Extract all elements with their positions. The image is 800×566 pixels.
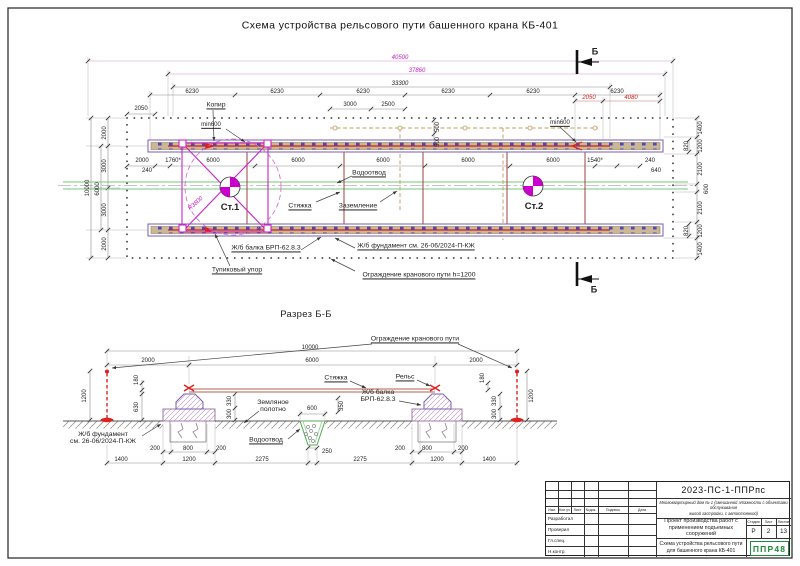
dim-6000: 6000 <box>461 158 474 164</box>
drain-lines <box>58 182 695 189</box>
dim-200: 200 <box>150 446 160 452</box>
dim-630: 630 <box>134 402 140 412</box>
dim-2000-left: 2000 <box>102 237 108 250</box>
dim-500: 500 <box>435 122 441 132</box>
dim-3000-left: 3000 <box>102 203 108 216</box>
ppr48-logo: ППР48 <box>750 541 789 556</box>
dim-rail-length: 33300 <box>392 81 409 87</box>
section-mark-bottom <box>577 262 599 286</box>
label-vodootvod-section: Водоотвод <box>249 436 283 443</box>
dim-240: 240 <box>142 168 152 174</box>
dim-1200-post-right: 1200 <box>529 389 535 402</box>
label-zazemlenie: Заземление <box>339 202 377 209</box>
dim-600-right: 600 <box>704 184 710 194</box>
dim-3000: 3000 <box>343 102 356 108</box>
tb-row-proveril: Проверил <box>546 524 586 535</box>
tb-stage-value: Р <box>746 525 761 538</box>
foundation-left <box>163 394 215 421</box>
tb-col-list: Лист <box>571 506 584 513</box>
dim-6000-section: 6000 <box>305 358 318 364</box>
title-block: Изм. Кол.уч Лист №док. Подпись Дата Разр… <box>545 481 790 556</box>
dim-6000: 6000 <box>546 158 559 164</box>
label-styazhka-plan: Стяжка <box>288 202 311 209</box>
dim-200: 200 <box>458 446 468 452</box>
dim-2100-right: 2100 <box>698 201 704 214</box>
dim-300-right: 300 <box>492 409 498 419</box>
dim-2275: 2275 <box>353 457 366 463</box>
tb-col-data: Дата <box>628 506 656 513</box>
dim-2000: 2000 <box>135 158 148 164</box>
dim-180-right: 180 <box>480 373 486 383</box>
label-ograzhdenie-section: Ограждение кранового пути <box>371 335 459 342</box>
rail-beam-top <box>148 140 663 152</box>
dim-2500: 2500 <box>381 102 394 108</box>
dim-1200-right: 1200 <box>698 224 704 237</box>
dim-10000-section: 10000 <box>302 345 319 351</box>
drawing-sheet: Схема устройства рельсового пути башенно… <box>0 0 800 566</box>
dim-4080: 4080 <box>624 95 637 101</box>
dim-6000: 6000 <box>206 158 219 164</box>
dim-6000: 6000 <box>291 158 304 164</box>
plan-view <box>58 50 700 286</box>
label-ograzhdenie-plan: Ограждение кранового пути h=1200 <box>363 271 476 278</box>
dim-350: 350 <box>339 401 345 411</box>
tb-sheet-value: 2 <box>761 525 776 538</box>
dim-2275: 2275 <box>255 457 268 463</box>
dim-300-left: 300 <box>227 409 233 419</box>
section-mark-label-top: Б <box>592 47 598 56</box>
tb-row-razrabotal: Разработал <box>546 513 586 524</box>
tb-project-description: Многоквартирный дом № 1 (смешанной этажн… <box>657 498 790 518</box>
dim-330-right: 330 <box>492 396 498 406</box>
tb-col-izm: Изм. <box>546 506 558 513</box>
dim-820-right: 820 <box>684 141 690 151</box>
tb-stage-label: Стадия <box>746 518 761 525</box>
dim-3000-left: 3000 <box>102 159 108 172</box>
tb-sheet-label: Лист <box>761 518 776 525</box>
page-frame <box>8 8 792 558</box>
label-styazhka-section: Стяжка <box>324 374 347 381</box>
dim-2000-section: 2000 <box>141 358 154 364</box>
tb-row-glspec: Гл.спец. <box>546 535 586 546</box>
dim-1200-post-left: 1200 <box>82 389 88 402</box>
beam-left <box>176 394 203 409</box>
beam-right <box>424 394 451 409</box>
dim-1200-section: 1200 <box>430 457 443 463</box>
tb-col-podpis: Подпись <box>598 506 628 513</box>
dim-2000-section: 2000 <box>469 358 482 364</box>
label-kopir: Копир <box>207 101 226 108</box>
tb-sheet-title: Схема устройства рельсового пути для баш… <box>657 538 745 557</box>
dim-500: 500 <box>435 137 441 147</box>
rails-section <box>184 385 440 391</box>
dim-6000-gauge: 6000 <box>95 182 101 195</box>
st2-symbol <box>523 176 543 196</box>
st1-symbol <box>220 177 240 197</box>
dim-min600-left: min600 <box>201 122 221 128</box>
dim-2050-right: 2050 <box>582 95 595 101</box>
dim-1200-right: 1200 <box>698 139 704 152</box>
dim-min600-right: min600 <box>550 120 570 126</box>
dim-6230: 6230 <box>185 89 198 95</box>
drain-ditch <box>300 421 325 445</box>
dim-800: 800 <box>183 446 193 452</box>
fence-post-right <box>511 370 524 423</box>
dim-240: 240 <box>645 158 655 164</box>
dim-1400-section: 1400 <box>114 457 127 463</box>
page-title: Схема устройства рельсового пути башенно… <box>242 20 558 31</box>
dim-1760: 1760* <box>165 158 181 164</box>
dim-axis: 37860 <box>409 68 426 74</box>
dim-250: 250 <box>322 449 332 455</box>
tb-col-koluch: Кол.уч <box>558 506 571 513</box>
dim-6000: 6000 <box>376 158 389 164</box>
label-fundament-section: Ж/б фундамент см. 26-06/2024-П-КЖ <box>70 431 136 445</box>
label-st2: Ст.2 <box>525 202 544 212</box>
dim-1200-section: 1200 <box>182 457 195 463</box>
dim-1540: 1540* <box>587 158 603 164</box>
dim-330-left: 330 <box>227 396 233 406</box>
tie-rod-section <box>189 389 435 392</box>
label-tupik: Тупиковый упор <box>212 266 262 273</box>
fence-post-left <box>101 370 114 423</box>
dim-1400-right: 1400 <box>698 242 704 255</box>
dim-2050-left: 2050 <box>134 106 147 112</box>
tb-row-nkontr: Н.контр. <box>546 546 586 557</box>
label-balka-section: Ж/б балка БРП-62.8.3 <box>360 389 395 403</box>
dim-820-right: 820 <box>684 226 690 236</box>
label-st1: Ст.1 <box>221 203 240 213</box>
dim-1400-section: 1400 <box>482 457 495 463</box>
tb-col-dok: №док. <box>584 506 598 513</box>
label-fundament-plan: Ж/б фундамент см. 26-06/2024-П-КЖ <box>357 242 474 249</box>
label-zemlyanoe: Земляное полотно <box>257 399 289 413</box>
dim-1400-right: 1400 <box>698 121 704 134</box>
dim-6230: 6230 <box>441 89 454 95</box>
dim-180-left: 180 <box>134 375 140 385</box>
dim-6230: 6230 <box>270 89 283 95</box>
section-title: Разрез Б-Б <box>280 310 332 320</box>
dim-2000-left: 2000 <box>102 126 108 139</box>
dim-640: 640 <box>651 168 661 174</box>
label-rels: Рельс <box>396 373 415 380</box>
dim-6230: 6230 <box>526 89 539 95</box>
dim-6230: 6230 <box>356 89 369 95</box>
dim-10000-left: 10000 <box>85 180 91 197</box>
tb-sheets-label: Листов <box>776 518 791 525</box>
dim-total: 40500 <box>392 55 409 61</box>
dim-600-section: 600 <box>307 406 317 412</box>
dim-2100-right: 2100 <box>698 162 704 175</box>
dim-6230: 6230 <box>610 89 623 95</box>
dim-200: 200 <box>395 446 405 452</box>
section-mark-label-bottom: Б <box>591 285 597 294</box>
tb-work-title: Проект производства работ с применением … <box>657 518 745 538</box>
tb-doc-number: 2023-ПС-1-ППРпс <box>656 482 791 498</box>
foundation-right <box>412 394 462 421</box>
label-vodootvod-plan: Водоотвод <box>352 169 386 176</box>
dim-200: 200 <box>216 446 226 452</box>
tb-sheets-value: 13 <box>776 525 791 538</box>
label-balka-plan: Ж/б балка БРП-62.8.3 <box>231 244 300 251</box>
dim-800: 800 <box>422 446 432 452</box>
